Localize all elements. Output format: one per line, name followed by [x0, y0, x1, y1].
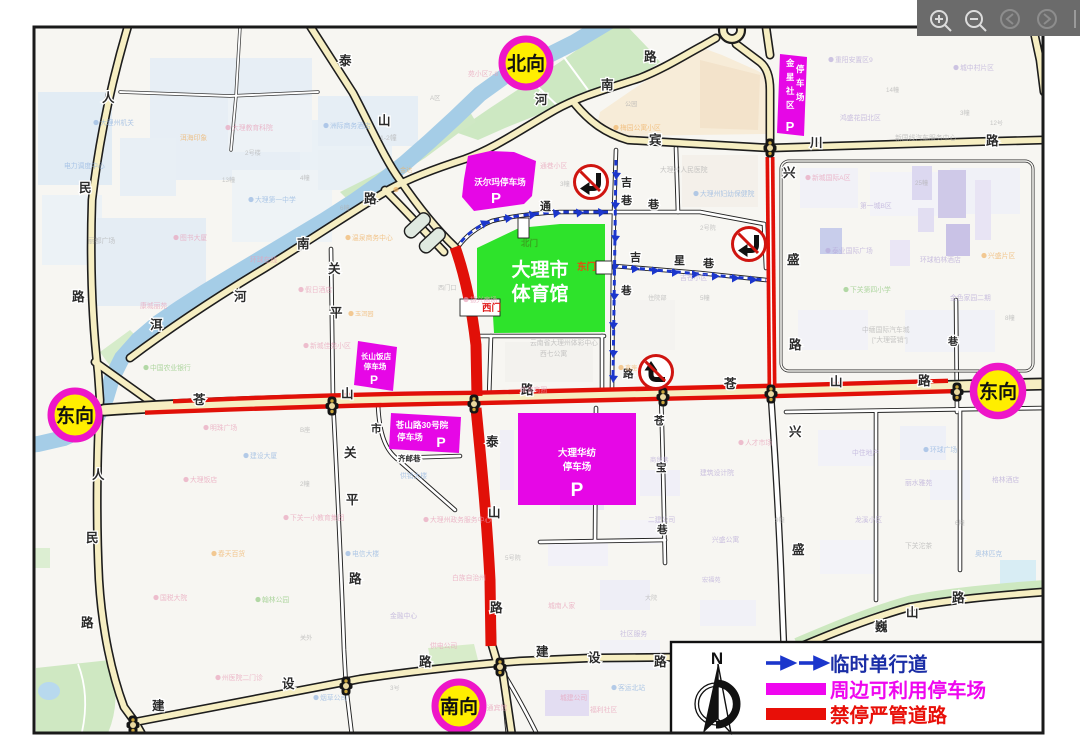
- svg-text:4幢: 4幢: [300, 174, 310, 182]
- svg-text:通: 通: [540, 200, 551, 213]
- svg-text:泰: 泰: [485, 434, 499, 449]
- svg-text:兴: 兴: [789, 424, 802, 439]
- svg-text:2幢: 2幢: [300, 480, 310, 488]
- svg-text:14幢: 14幢: [886, 86, 899, 94]
- svg-text:苑小区7-8: 苑小区7-8: [468, 69, 498, 78]
- svg-text:5幢: 5幢: [700, 294, 710, 302]
- svg-text:中缅国际汽车城: 中缅国际汽车城: [862, 325, 910, 334]
- svg-text:3幢: 3幢: [960, 109, 970, 117]
- svg-text:泰业国际广场: 泰业国际广场: [832, 246, 873, 255]
- svg-text:重阳安置区9: 重阳安置区9: [835, 55, 873, 64]
- svg-text:大理市: 大理市: [511, 258, 568, 281]
- svg-text:巷: 巷: [947, 335, 959, 348]
- svg-text:金融中心: 金融中心: [390, 611, 417, 620]
- svg-text:格林酒店: 格林酒店: [992, 475, 1019, 484]
- svg-text:城建公司: 城建公司: [560, 693, 587, 702]
- svg-text:鑫座: 鑫座: [625, 364, 637, 372]
- svg-text:山: 山: [378, 113, 391, 128]
- svg-text:金达: 金达: [400, 166, 412, 174]
- svg-text:路: 路: [490, 600, 503, 615]
- svg-text:下关一小教育集团: 下关一小教育集团: [290, 513, 345, 522]
- svg-text:通巷小区: 通巷小区: [540, 161, 567, 170]
- svg-text:停车场: 停车场: [364, 361, 387, 371]
- svg-text:下关沱茶: 下关沱茶: [905, 541, 932, 550]
- svg-text:环球柏林酒店: 环球柏林酒店: [920, 255, 961, 264]
- svg-text:停车场: 停车场: [397, 431, 423, 442]
- svg-text:停: 停: [796, 64, 805, 74]
- svg-text:建: 建: [536, 644, 549, 659]
- svg-text:B座: B座: [300, 426, 310, 434]
- svg-text:盛: 盛: [787, 252, 800, 267]
- svg-text:环球广场: 环球广场: [930, 445, 957, 454]
- svg-text:路: 路: [364, 191, 377, 206]
- svg-text:洲际商务酒店: 洲际商务酒店: [330, 121, 371, 130]
- svg-text:南向: 南向: [440, 695, 478, 718]
- svg-text:河: 河: [535, 92, 548, 107]
- svg-text:人: 人: [92, 467, 105, 482]
- svg-text:振兴商场: 振兴商场: [470, 295, 497, 304]
- svg-text:1-2幢: 1-2幢: [380, 133, 397, 142]
- svg-text:周边可利用停车场: 周边可利用停车场: [830, 679, 986, 702]
- svg-text:区: 区: [786, 100, 795, 110]
- svg-text:12号: 12号: [990, 120, 1003, 127]
- svg-text:盛: 盛: [792, 542, 805, 557]
- svg-text:国税大院: 国税大院: [160, 593, 187, 602]
- svg-text:电信大楼: 电信大楼: [352, 549, 379, 558]
- svg-text:建设大厦: 建设大厦: [250, 451, 277, 460]
- svg-text:大理州人民医院: 大理州人民医院: [660, 165, 708, 174]
- svg-text:6幢: 6幢: [955, 519, 965, 527]
- svg-text:城南人家: 城南人家: [548, 601, 575, 610]
- svg-text:P: P: [370, 373, 378, 387]
- svg-text:设: 设: [282, 676, 295, 691]
- svg-text:山: 山: [341, 386, 354, 401]
- svg-text:城中村片区: 城中村片区: [960, 63, 994, 72]
- svg-text:星: 星: [674, 254, 685, 267]
- svg-text:洱海印象: 洱海印象: [180, 133, 207, 142]
- svg-text:住院部: 住院部: [648, 294, 667, 302]
- svg-text:3号: 3号: [390, 685, 400, 692]
- svg-text:沃尔玛停车场: 沃尔玛停车场: [474, 176, 526, 187]
- svg-text:车: 车: [796, 78, 805, 88]
- svg-text:人才市场: 人才市场: [745, 438, 772, 447]
- svg-text:吉: 吉: [630, 250, 641, 264]
- svg-text:大理州机关: 大理州机关: [100, 118, 134, 127]
- svg-text:吉苍小区: 吉苍小区: [680, 273, 707, 282]
- svg-text:康城丽苑: 康城丽苑: [140, 301, 167, 310]
- svg-text:梅园公寓小区: 梅园公寓小区: [620, 123, 661, 132]
- svg-text:苍山路30号院: 苍山路30号院: [395, 419, 449, 430]
- svg-text:电力调度中心: 电力调度中心: [64, 161, 105, 170]
- svg-text:南: 南: [601, 77, 614, 92]
- svg-text:宏福苑: 宏福苑: [702, 576, 721, 584]
- svg-text:大理州妇幼保健院: 大理州妇幼保健院: [700, 189, 755, 198]
- svg-text:3幢: 3幢: [560, 180, 570, 188]
- svg-text:明珠广场: 明珠广场: [210, 423, 237, 432]
- svg-text:新城国际A区: 新城国际A区: [812, 173, 851, 182]
- svg-text:商贸巷: 商贸巷: [650, 456, 669, 464]
- svg-text:第一城B区: 第一城B区: [860, 201, 892, 210]
- svg-text:山: 山: [830, 374, 843, 389]
- svg-text:社区服务: 社区服务: [620, 629, 647, 638]
- svg-text:市: 市: [371, 422, 382, 435]
- svg-text:大院: 大院: [645, 594, 657, 602]
- svg-text:西七公寓: 西七公寓: [540, 349, 567, 358]
- svg-text:兴: 兴: [783, 165, 796, 180]
- svg-text:关外: 关外: [300, 634, 312, 642]
- svg-text:新城佳苑小区: 新城佳苑小区: [310, 341, 351, 350]
- svg-text:宾: 宾: [649, 132, 662, 147]
- svg-text:苍: 苍: [192, 392, 206, 407]
- svg-text:丽都广场: 丽都广场: [88, 236, 115, 245]
- svg-text:河: 河: [234, 289, 247, 304]
- svg-text:客运北站: 客运北站: [618, 683, 645, 692]
- svg-text:建: 建: [152, 698, 165, 713]
- svg-text:场: 场: [796, 92, 805, 102]
- svg-text:兴盛片区: 兴盛片区: [988, 251, 1015, 260]
- svg-text:平: 平: [330, 306, 343, 320]
- svg-text:齐邮巷: 齐邮巷: [398, 453, 421, 463]
- svg-text:巷: 巷: [702, 256, 715, 270]
- svg-text:9幢: 9幢: [775, 516, 785, 524]
- svg-text:星: 星: [786, 72, 795, 82]
- svg-text:中国农业银行: 中国农业银行: [150, 363, 191, 372]
- svg-text:温泉商务中心: 温泉商务中心: [352, 233, 393, 242]
- svg-text:关: 关: [328, 261, 341, 276]
- svg-text:路: 路: [986, 133, 999, 148]
- svg-text:体育商圈: 体育商圈: [520, 385, 547, 394]
- svg-text:公园: 公园: [625, 101, 637, 108]
- svg-text:东向: 东向: [979, 380, 1017, 403]
- svg-text:P: P: [786, 119, 795, 134]
- svg-text:大理州政务服务中心: 大理州政务服务中心: [430, 515, 491, 524]
- svg-text:路: 路: [349, 571, 362, 586]
- svg-text:体育馆: 体育馆: [511, 282, 568, 305]
- svg-text:停车场: 停车场: [563, 461, 592, 473]
- svg-text:金色家园二期: 金色家园二期: [950, 293, 991, 302]
- svg-text:2号楼: 2号楼: [245, 149, 261, 157]
- svg-text:13幢: 13幢: [222, 176, 235, 184]
- svg-text:东门: 东门: [577, 261, 596, 273]
- svg-text:人: 人: [102, 90, 115, 105]
- svg-text:8幢: 8幢: [1005, 314, 1015, 322]
- svg-text:6幢: 6幢: [340, 204, 350, 212]
- svg-text:玉洱园: 玉洱园: [355, 310, 374, 318]
- svg-text:临时单行道: 临时单行道: [830, 653, 928, 676]
- svg-text:巷: 巷: [620, 284, 632, 297]
- svg-text:设: 设: [588, 650, 601, 665]
- svg-text:鸿盛花园北区: 鸿盛花园北区: [840, 113, 881, 122]
- svg-text:巷: 巷: [656, 523, 668, 536]
- svg-text:P: P: [491, 190, 501, 207]
- svg-text:下关第四小学: 下关第四小学: [850, 285, 891, 294]
- svg-text:路: 路: [72, 289, 85, 304]
- svg-text:二建公司: 二建公司: [648, 515, 675, 524]
- svg-text:假日酒店: 假日酒店: [305, 285, 332, 294]
- svg-text:新国线汽车服务中心: 新国线汽车服务中心: [895, 133, 956, 142]
- svg-text:泰: 泰: [338, 53, 352, 68]
- svg-text:大理第一中学: 大理第一中学: [255, 195, 296, 204]
- svg-text:云南省大理州体彩中心: 云南省大理州体彩中心: [530, 338, 598, 347]
- svg-text:禁停严管道路: 禁停严管道路: [830, 704, 948, 727]
- svg-text:北向: 北向: [507, 52, 545, 75]
- svg-text:川: 川: [809, 136, 823, 150]
- svg-text:南: 南: [297, 236, 310, 251]
- svg-text:巍: 巍: [875, 619, 888, 634]
- svg-text:2号院: 2号院: [700, 224, 716, 232]
- svg-text:大理教育科院: 大理教育科院: [232, 123, 273, 132]
- svg-text:奥林匹克: 奥林匹克: [975, 549, 1002, 558]
- svg-text:洱: 洱: [150, 317, 163, 332]
- svg-text:路: 路: [789, 337, 802, 352]
- svg-text:西门口: 西门口: [438, 284, 457, 292]
- svg-text:兴盛公寓: 兴盛公寓: [712, 535, 739, 544]
- svg-text:金: 金: [785, 58, 795, 68]
- svg-text:北门: 北门: [521, 238, 538, 248]
- svg-text:路: 路: [654, 654, 667, 669]
- svg-text:社: 社: [785, 86, 795, 96]
- svg-text:春天百货: 春天百货: [218, 549, 245, 558]
- svg-text:路: 路: [419, 654, 432, 669]
- svg-text:供电公司: 供电公司: [430, 641, 457, 650]
- svg-text:关: 关: [344, 445, 357, 460]
- svg-text:龙溪小区: 龙溪小区: [855, 515, 882, 524]
- svg-text:巷: 巷: [620, 193, 633, 207]
- svg-text:苍: 苍: [723, 376, 737, 391]
- svg-text:路: 路: [644, 49, 657, 64]
- svg-text:长山饭店: 长山饭店: [361, 351, 392, 361]
- svg-text:白族自治州: 白族自治州: [452, 573, 486, 582]
- svg-text:路: 路: [81, 615, 94, 630]
- svg-text:路: 路: [918, 373, 931, 388]
- svg-text:["大理营销"]: ["大理营销"]: [872, 335, 908, 344]
- svg-text:图书大厦: 图书大厦: [180, 233, 207, 242]
- svg-text:苍: 苍: [653, 414, 665, 427]
- svg-text:25幢: 25幢: [915, 179, 928, 187]
- svg-text:山: 山: [906, 605, 919, 620]
- svg-text:大理饭店: 大理饭店: [190, 475, 217, 484]
- svg-text:州医院二门诊: 州医院二门诊: [222, 673, 263, 682]
- svg-text:大理华纺: 大理华纺: [558, 447, 597, 459]
- svg-text:吉: 吉: [621, 175, 632, 189]
- svg-text:东向: 东向: [56, 404, 94, 427]
- svg-text:民: 民: [86, 531, 99, 545]
- svg-text:翰林公园: 翰林公园: [262, 595, 289, 604]
- svg-text:P: P: [571, 480, 584, 501]
- svg-text:环球在线: 环球在线: [250, 255, 277, 264]
- svg-text:丽水雅苑: 丽水雅苑: [905, 478, 932, 487]
- svg-text:P: P: [436, 434, 445, 450]
- svg-text:供销大楼: 供销大楼: [400, 471, 427, 480]
- svg-text:5号院: 5号院: [505, 554, 521, 562]
- svg-text:福利社区: 福利社区: [590, 705, 617, 714]
- svg-text:A区: A区: [430, 95, 440, 102]
- svg-text:平: 平: [346, 493, 359, 507]
- svg-text:建筑设计院: 建筑设计院: [700, 468, 734, 477]
- svg-text:民: 民: [79, 181, 92, 195]
- svg-text:中住地产: 中住地产: [852, 448, 879, 457]
- svg-text:路: 路: [952, 590, 965, 605]
- svg-text:巷: 巷: [647, 197, 660, 211]
- svg-text:N: N: [711, 649, 723, 668]
